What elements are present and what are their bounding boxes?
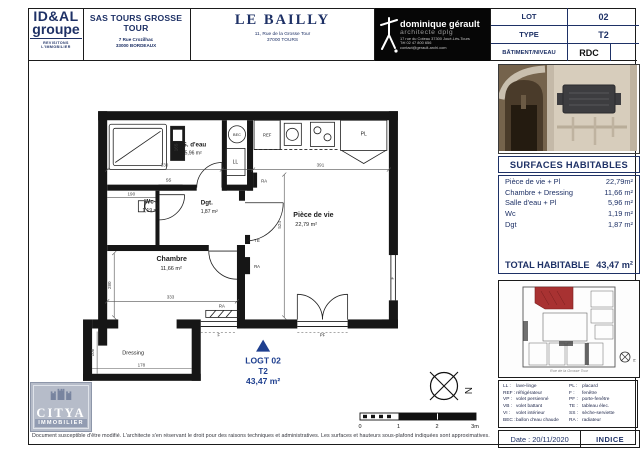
room-dressing-name: Dressing — [122, 351, 144, 357]
ra-label: RA — [254, 264, 260, 269]
project-address-line2: 37000 TOURS — [192, 38, 373, 44]
lot-row: LOT 02 — [491, 8, 639, 26]
dim-280: 280 — [107, 281, 112, 289]
type-row: TYPE T2 — [491, 26, 639, 44]
logt-number: LOGT 02 — [245, 356, 281, 366]
idal-logo-bottom: groupe — [30, 23, 82, 35]
scale-bar: 0 1 2 3m — [354, 411, 482, 433]
north-label: N — [462, 387, 473, 394]
legend-label: placard — [582, 384, 598, 391]
legend-box: LLlave-linge REFréfrigérateur VPvolet pe… — [498, 380, 638, 428]
room-dgt-area: 1,87 m² — [201, 209, 218, 215]
batiment-row: BÂTIMENT/NIVEAU RDC — [491, 44, 639, 61]
dim-330: 330 — [161, 163, 169, 168]
surfaces-total-label: TOTAL HABITABLE — [505, 260, 590, 270]
key-plan-caption: Rue de la Grosse Tour — [550, 369, 589, 373]
surfaces-table: Pièce de vie + Pl 22,79m² Chambre + Dres… — [498, 175, 640, 274]
ra-label: RA — [261, 179, 267, 184]
company-name: SAS TOURS GROSSE TOUR — [84, 13, 188, 33]
room-dgt-name: Dgt. — [201, 200, 213, 207]
architect-email: contact@gerault-archi.com — [400, 46, 488, 51]
plan-fixture-labels: BEC LL REF PL SS RA TE RA RA F PF F — [166, 131, 395, 337]
surface-row: Pièce de vie + Pl 22,79m² — [499, 176, 639, 187]
te-label: TE — [254, 238, 260, 243]
project-block: LE BAILLY 11, Rue de la Grosse Tour 3700… — [192, 12, 373, 44]
key-plan-thumbnail: N Rue de la Grosse Tour — [498, 280, 640, 378]
company-address-line2: 33000 BORDEAUX — [84, 43, 188, 49]
legend-label: volet intérieur — [516, 411, 545, 418]
legend-abbr: RA — [569, 418, 582, 425]
dim-178: 178 — [138, 363, 146, 368]
scale-labels: 0 1 2 3m — [358, 424, 479, 430]
surface-value: 11,66 m² — [604, 188, 633, 198]
surfaces-total-value: 43,47 m² — [596, 260, 633, 270]
legend-abbr: TE — [569, 404, 582, 411]
f-label: F — [390, 276, 395, 279]
dim-333: 333 — [167, 294, 175, 299]
legend-label: lave-linge — [516, 384, 537, 391]
surface-value: 1,19 m² — [608, 209, 633, 219]
dim-524: 524 — [277, 221, 282, 229]
batiment-empty-cell — [610, 44, 639, 61]
legend-label: volet battant — [516, 404, 542, 411]
dim-190: 190 — [128, 192, 136, 197]
surfaces-title: SURFACES HABITABLES — [498, 156, 640, 173]
scale-tick-1: 1 — [397, 424, 400, 430]
surface-row: Wc 1,19 m² — [499, 208, 639, 219]
north-compass-icon: N — [424, 366, 480, 410]
surface-row: Chambre + Dressing 11,66 m² — [499, 187, 639, 198]
facade-photo-image — [499, 65, 637, 151]
type-value: T2 — [568, 26, 639, 43]
room-sdeau-name: S. d'eau — [183, 141, 207, 148]
key-plan-drawing: N Rue de la Grosse Tour — [499, 281, 636, 374]
date-indice-row: Date : 20/11/2020 INDICE — [498, 430, 640, 448]
company-address: 7 Rue Crozilhac 33000 BORDEAUX — [84, 37, 188, 48]
architect-name: dominique gérault — [400, 19, 488, 29]
indice-cell: INDICE — [581, 431, 639, 447]
pf-label: PF — [320, 333, 326, 338]
header-cell-divider — [190, 9, 191, 60]
architect-logo-icon — [378, 15, 400, 55]
idal-tagline: REVISITONS L'IMMOBILIER — [30, 38, 82, 49]
logt-marker: LOGT 02 T2 43,47 m² — [245, 340, 281, 386]
lot-value: 02 — [568, 8, 639, 25]
surface-label: Dgt — [505, 220, 517, 230]
lot-table: LOT 02 TYPE T2 BÂTIMENT/NIVEAU RDC — [490, 8, 639, 61]
legend-abbr: LL — [503, 384, 516, 391]
architect-block: dominique gérault architecte dplg 17 rue… — [375, 8, 490, 61]
f-label: F — [218, 333, 221, 338]
plan-walls — [83, 111, 398, 381]
citya-logo-inner: CITYA IMMOBILIER — [33, 385, 89, 429]
room-chambre-area: 11,66 m² — [160, 266, 182, 272]
logt-area: 43,47 m² — [246, 376, 280, 386]
architect-text: dominique gérault architecte dplg 17 rue… — [400, 19, 490, 51]
room-sejour-area: 22,79 m² — [295, 222, 317, 228]
citya-castle-icon — [46, 388, 76, 400]
surface-row: Salle d'eau + Pl 5,96 m² — [499, 197, 639, 208]
date-cell: Date : 20/11/2020 — [499, 431, 581, 447]
type-label: TYPE — [491, 26, 568, 43]
ss-label: SS — [166, 178, 172, 183]
scale-tick-0: 0 — [358, 424, 361, 430]
room-sejour-name: Pièce de vie — [293, 212, 333, 219]
entry-arrow-icon — [256, 340, 270, 352]
room-wc-area: 1,19 m² — [142, 208, 159, 214]
pl-label: PL — [361, 131, 367, 137]
facade-photo — [498, 64, 640, 154]
project-address: 11, Rue de la Grosse Tour 37000 TOURS — [192, 32, 373, 44]
batiment-value: RDC — [568, 44, 610, 61]
company-block: SAS TOURS GROSSE TOUR 7 Rue Crozilhac 33… — [84, 13, 188, 48]
surface-row: Dgt 1,87 m² — [499, 219, 639, 230]
ref-label: REF — [263, 132, 272, 137]
plan-dimension-labels: 330 391 524 333 280 190 165 108 178 — [90, 143, 325, 368]
surface-label: Pièce de vie + Pl — [505, 177, 560, 187]
disclaimer-text: Document susceptible d'être modifié. L'a… — [32, 433, 494, 439]
room-wc-name: Wc — [144, 199, 154, 206]
bec-label: BEC — [233, 133, 241, 137]
citya-subtitle: IMMOBILIER — [35, 419, 87, 427]
legend-left-column: LLlave-linge REFréfrigérateur VPvolet pe… — [503, 384, 569, 427]
legend-abbr: VB — [503, 404, 516, 411]
ra-label: RA — [219, 303, 225, 308]
legend-label: ballon d'eau chaude — [516, 418, 559, 425]
surfaces-total-row: TOTAL HABITABLE 43,47 m² — [499, 260, 639, 270]
ll-label: LL — [233, 160, 239, 166]
scale-tick-3m: 3m — [471, 424, 479, 430]
legend-label: radiateur — [582, 418, 601, 425]
legend-abbr: VI — [503, 411, 516, 418]
dim-165: 165 — [174, 143, 179, 151]
floorplan-sheet: ID&AL groupe REVISITONS L'IMMOBILIER SAS… — [0, 0, 644, 458]
key-plan-north-label: N — [632, 359, 636, 362]
surface-label: Chambre + Dressing — [505, 188, 573, 198]
legend-abbr: SS — [569, 411, 582, 418]
legend-abbr: BEC — [503, 418, 516, 425]
surface-label: Wc — [505, 209, 516, 219]
lot-label: LOT — [491, 8, 568, 25]
surface-value: 5,96 m² — [608, 198, 633, 208]
project-name: LE BAILLY — [192, 12, 373, 29]
surface-label: Salle d'eau + Pl — [505, 198, 556, 208]
surface-value: 22,79m² — [606, 177, 633, 187]
scale-tick-2: 2 — [435, 424, 438, 430]
citya-logo: CITYA IMMOBILIER — [30, 382, 92, 432]
legend-label: tableau élec. — [582, 404, 609, 411]
surface-value: 1,87 m² — [608, 220, 633, 230]
room-sdeau-area: 5,96 m² — [185, 150, 202, 156]
logt-type: T2 — [258, 367, 268, 376]
dim-391: 391 — [317, 163, 325, 168]
batiment-label: BÂTIMENT/NIVEAU — [491, 44, 568, 61]
dim-108: 108 — [90, 348, 95, 356]
legend-label: sèche-serviette — [582, 411, 615, 418]
floor-plan-drawing: 330 391 524 333 280 190 165 108 178 BEC … — [78, 104, 410, 386]
room-chambre-name: Chambre — [156, 256, 187, 263]
legend-abbr: PL — [569, 384, 582, 391]
idal-logo: ID&AL groupe REVISITONS L'IMMOBILIER — [30, 10, 82, 59]
legend-right-column: PLplacard Ffenêtre PFporte-fenêtre TEtab… — [569, 384, 635, 427]
